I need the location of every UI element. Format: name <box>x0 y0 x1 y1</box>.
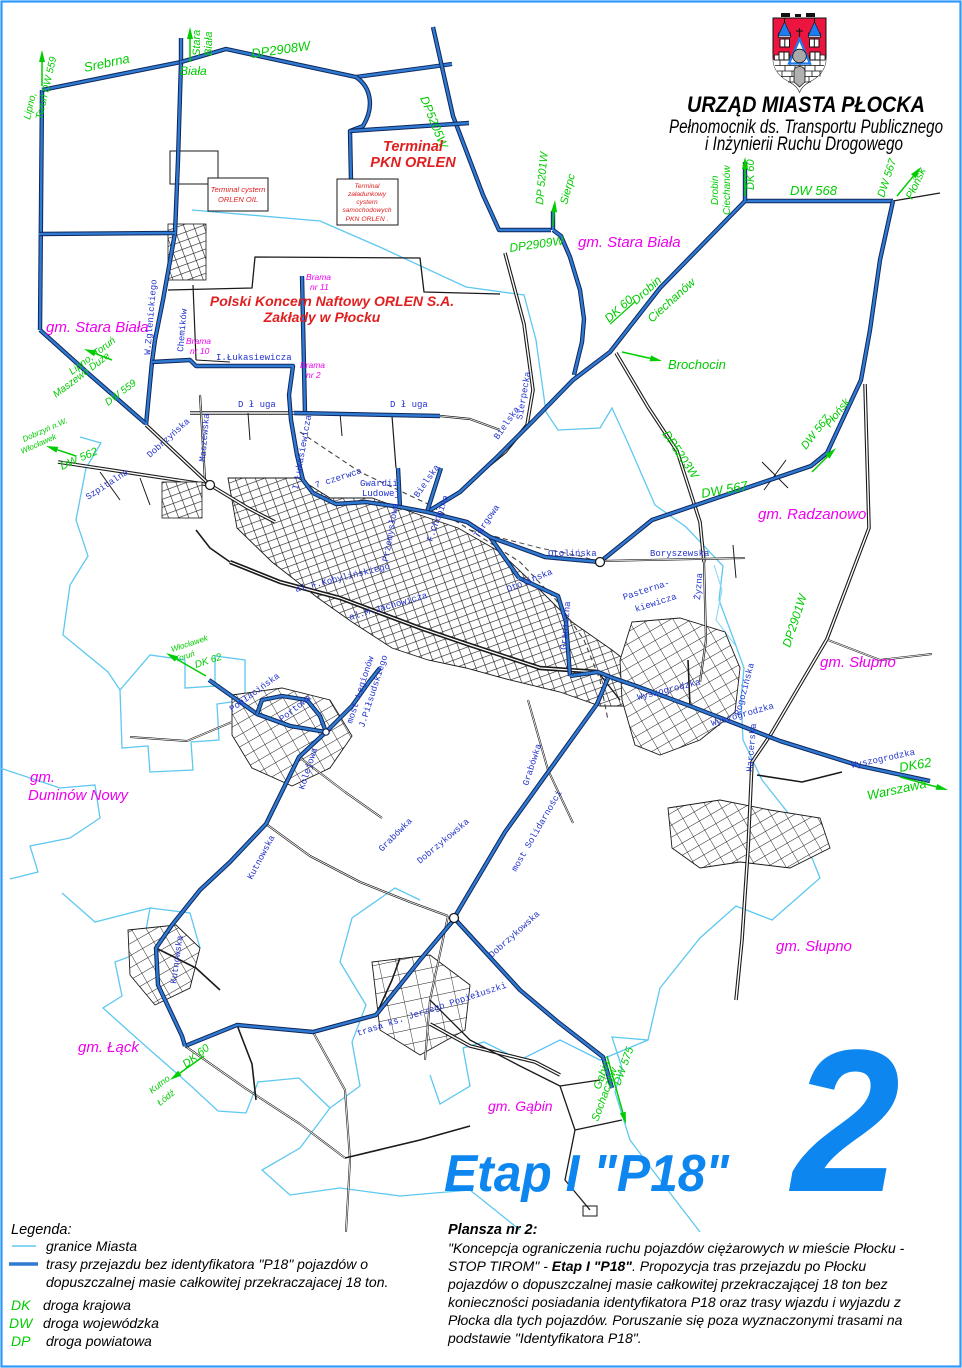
svg-text:gm.: gm. <box>30 769 55 786</box>
svg-text:i Inżynierii Ruchu Drogowego: i Inżynierii Ruchu Drogowego <box>705 134 903 155</box>
svg-text:Gwardii: Gwardii <box>360 479 398 489</box>
svg-text:trasy przejazdu bez identyfika: trasy przejazdu bez identyfikatora "P18"… <box>46 1256 368 1272</box>
svg-text:Brochocin: Brochocin <box>668 357 726 372</box>
svg-text:STOP TIROM" - Etap I "P18". Pr: STOP TIROM" - Etap I "P18". Propozycja t… <box>448 1258 866 1274</box>
svg-text:podstawie "Identyfikatora P18": podstawie "Identyfikatora P18". <box>447 1330 642 1346</box>
svg-text:2: 2 <box>788 1008 900 1235</box>
svg-text:Zakłady w Płocku: Zakłady w Płocku <box>263 309 381 325</box>
svg-text:Ludowej: Ludowej <box>362 489 400 499</box>
svg-text:"Koncepcja ograniczenia ruchu: "Koncepcja ograniczenia ruchu pojazdów c… <box>448 1240 905 1256</box>
svg-text:Terminal: Terminal <box>383 139 444 155</box>
svg-text:Terminal: Terminal <box>354 183 380 190</box>
svg-text:Plansza nr 2:: Plansza nr 2: <box>448 1222 538 1238</box>
svg-text:droga wojewódzka: droga wojewódzka <box>43 1315 159 1331</box>
svg-text:PKN ORLEN .: PKN ORLEN . <box>345 216 388 223</box>
svg-text:droga krajowa: droga krajowa <box>43 1297 131 1313</box>
svg-text:droga powiatowa: droga powiatowa <box>46 1333 152 1349</box>
svg-text:Brama: Brama <box>186 336 211 346</box>
svg-text:gm. Słupno: gm. Słupno <box>820 654 896 671</box>
svg-text:DW: DW <box>9 1315 34 1331</box>
svg-text:Biała: Biała <box>180 64 207 78</box>
svg-text:nr 10: nr 10 <box>190 346 210 356</box>
svg-text:gm. Stara Biała: gm. Stara Biała <box>46 319 149 336</box>
svg-text:nr 11: nr 11 <box>310 282 329 292</box>
svg-text:ORLEN OIL: ORLEN OIL <box>218 195 258 204</box>
svg-text:DK 60: DK 60 <box>745 159 757 190</box>
svg-text:gm. Gąbin: gm. Gąbin <box>488 1098 553 1114</box>
svg-text:Terminal cystern: Terminal cystern <box>211 185 266 194</box>
svg-text:Brama: Brama <box>306 272 331 282</box>
svg-text:Płocka dla tych pojazdów. Poru: Płocka dla tych pojazdów. Poruszanie się… <box>448 1312 903 1328</box>
svg-text:PKN ORLEN: PKN ORLEN <box>370 155 456 171</box>
svg-text:Brama: Brama <box>300 360 325 370</box>
svg-text:cystern: cystern <box>356 199 378 206</box>
svg-text:I.Łukasiewicza: I.Łukasiewicza <box>216 353 292 363</box>
svg-text:samochodowych: samochodowych <box>342 207 391 214</box>
svg-text:DP: DP <box>11 1333 31 1349</box>
svg-text:Boryszewska: Boryszewska <box>650 549 710 559</box>
svg-text:Drobin: Drobin <box>710 175 721 205</box>
svg-text:nr 2: nr 2 <box>306 370 321 380</box>
svg-text:granice Miasta: granice Miasta <box>46 1238 137 1254</box>
svg-text:URZĄD MIASTA PŁOCKA: URZĄD MIASTA PŁOCKA <box>687 92 925 117</box>
svg-text:załadunkowy: załadunkowy <box>347 191 387 198</box>
svg-text:Biała: Biała <box>203 32 215 56</box>
svg-text:D ł uga: D ł uga <box>238 400 276 410</box>
svg-text:Stara: Stara <box>191 30 203 56</box>
svg-text:DK: DK <box>11 1297 31 1313</box>
svg-text:D ł uga: D ł uga <box>390 400 428 410</box>
svg-text:Otolińska: Otolińska <box>548 549 597 559</box>
svg-text:pojazdów o dopuszczalnej masie: pojazdów o dopuszczalnej masie całkowite… <box>447 1276 888 1292</box>
svg-text:Etap I "P18": Etap I "P18" <box>444 1145 730 1203</box>
svg-text:Ciechanów: Ciechanów <box>722 165 733 215</box>
svg-text:DW 568: DW 568 <box>790 183 838 198</box>
svg-text:Duninów Nowy: Duninów Nowy <box>28 787 130 804</box>
svg-text:dopuszczalnej masie całkowitej: dopuszczalnej masie całkowitej przekracz… <box>46 1274 388 1290</box>
svg-text:Polski Koncern Naftowy ORLEN S: Polski Koncern Naftowy ORLEN S.A. <box>210 293 454 309</box>
svg-text:konieczności posiadania identy: konieczności posiadania identyfikatora P… <box>448 1294 901 1310</box>
svg-text:gm. Łąck: gm. Łąck <box>78 1039 140 1056</box>
svg-text:gm. Stara Biała: gm. Stara Biała <box>578 234 681 251</box>
svg-text:gm. Słupno: gm. Słupno <box>776 938 852 955</box>
svg-text:gm. Radzanowo: gm. Radzanowo <box>758 506 866 523</box>
svg-text:Legenda:: Legenda: <box>11 1222 71 1238</box>
